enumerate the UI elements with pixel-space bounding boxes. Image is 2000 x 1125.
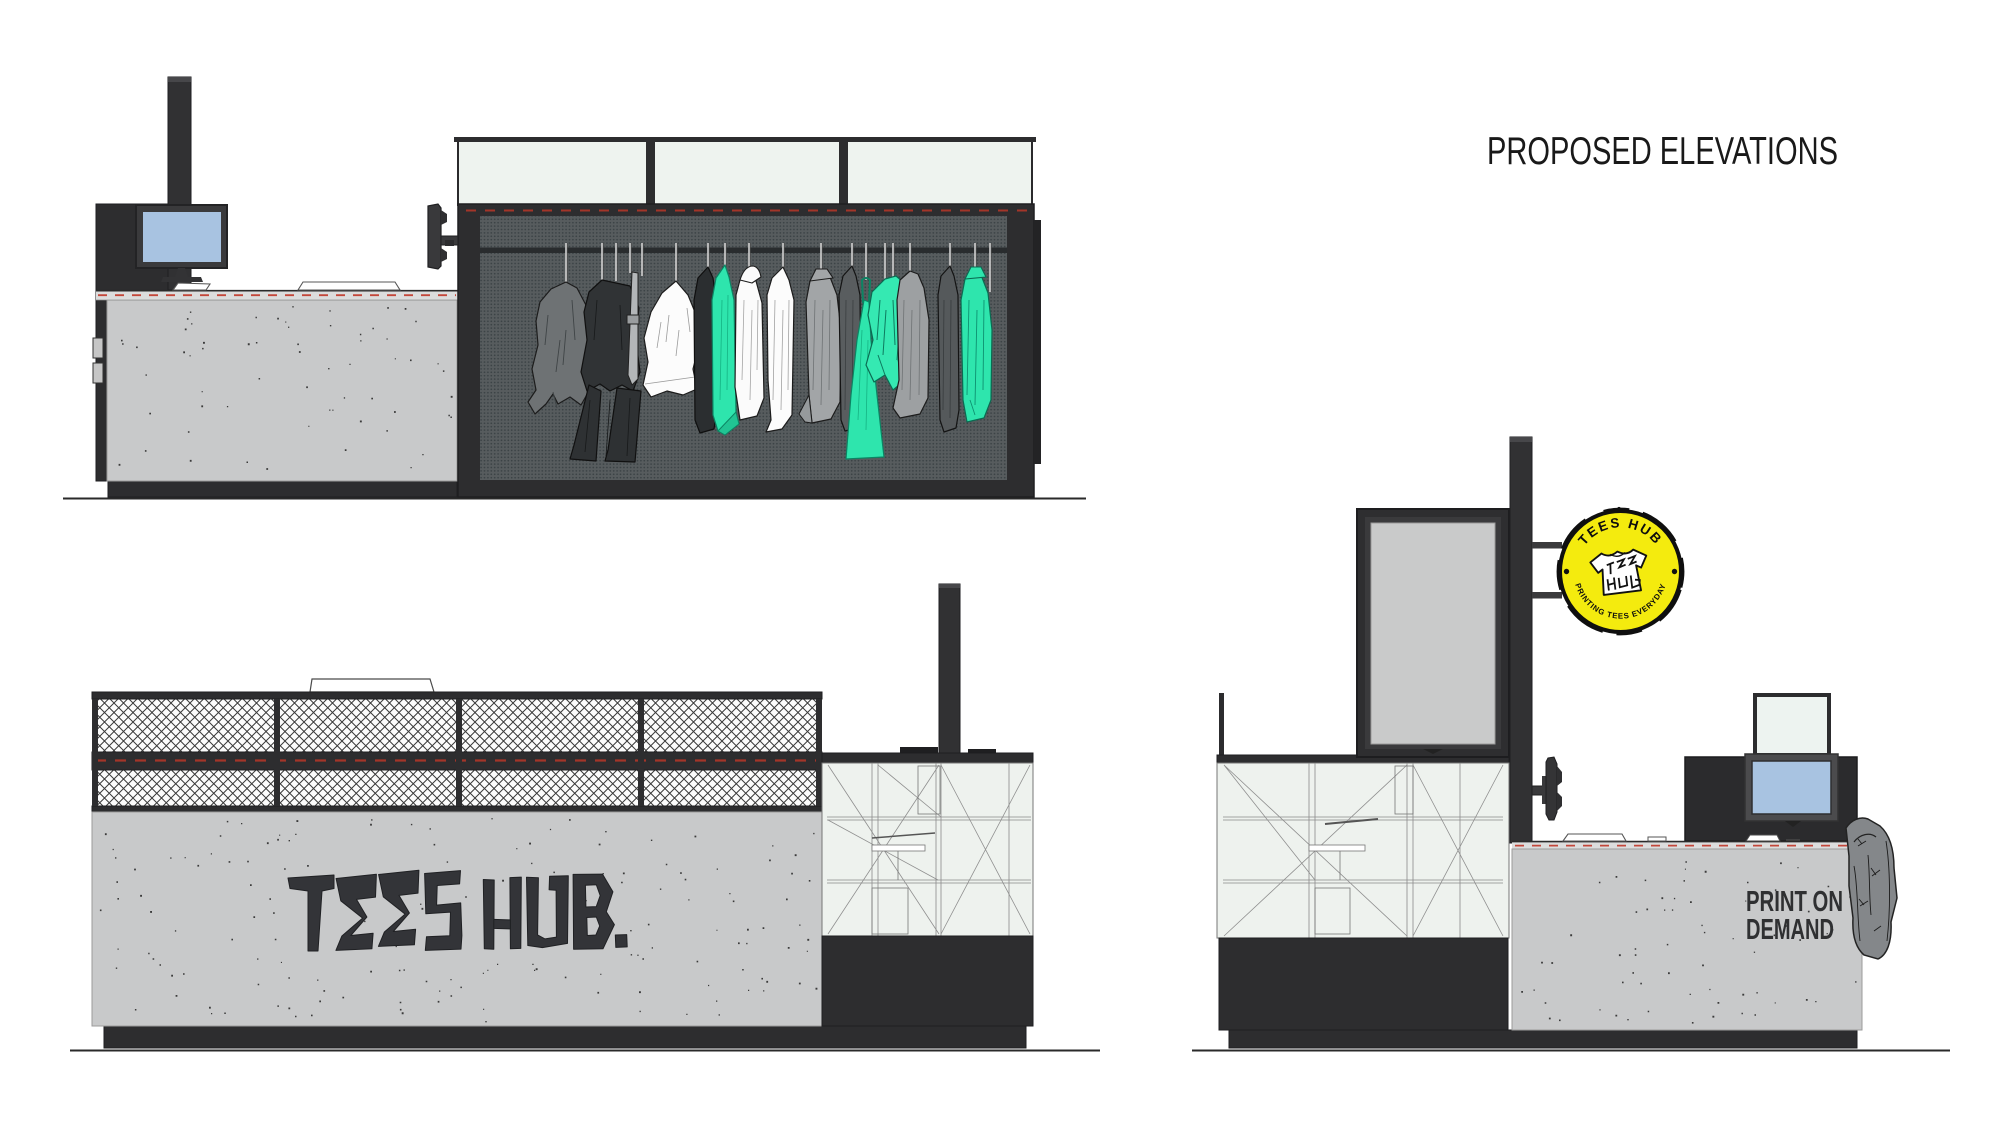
svg-text:DEMAND: DEMAND bbox=[1746, 914, 1834, 946]
svg-text:PROPOSED ELEVATIONS: PROPOSED ELEVATIONS bbox=[1487, 130, 1838, 173]
